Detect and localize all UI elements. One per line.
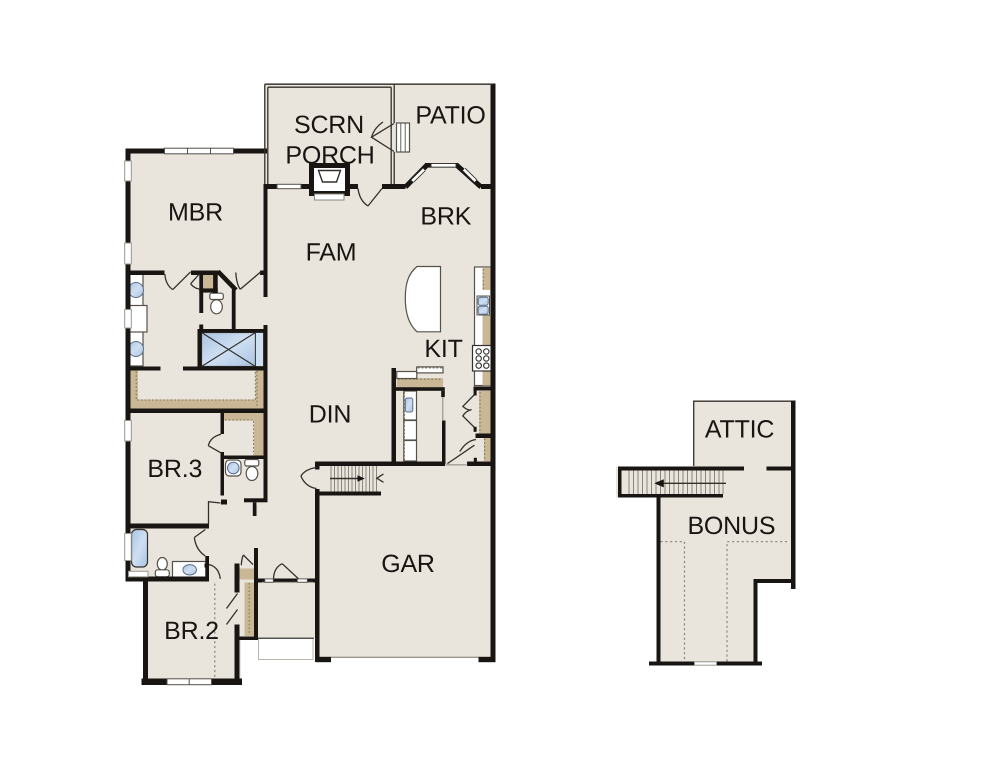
svg-text:BR.3: BR.3 xyxy=(147,455,202,483)
svg-text:MBR: MBR xyxy=(168,199,223,227)
svg-text:DIN: DIN xyxy=(309,401,351,429)
svg-text:BR.2: BR.2 xyxy=(164,617,219,645)
svg-text:FAM: FAM xyxy=(306,239,357,267)
svg-text:GAR: GAR xyxy=(381,550,435,578)
svg-text:PORCH: PORCH xyxy=(285,141,374,169)
svg-text:SCRN: SCRN xyxy=(294,111,364,139)
svg-text:KIT: KIT xyxy=(424,335,462,363)
svg-text:BONUS: BONUS xyxy=(687,512,775,540)
svg-text:BRK: BRK xyxy=(420,202,471,230)
svg-text:ATTIC: ATTIC xyxy=(705,415,775,443)
svg-text:PATIO: PATIO xyxy=(415,101,485,129)
